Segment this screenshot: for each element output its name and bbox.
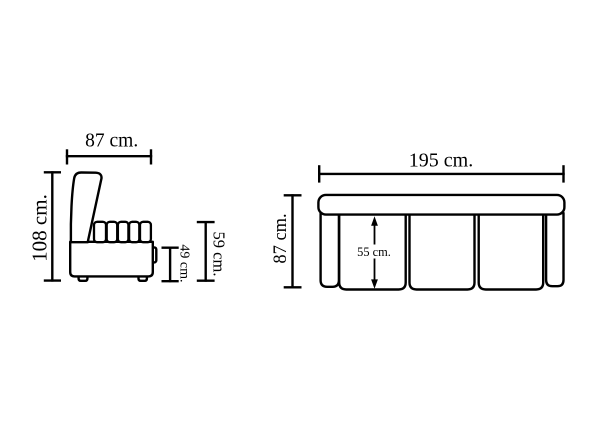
svg-text:49 cm.: 49 cm.: [177, 244, 192, 282]
svg-text:87 cm.: 87 cm.: [271, 213, 291, 263]
svg-text:195 cm.: 195 cm.: [409, 150, 473, 172]
svg-text:55 cm.: 55 cm.: [357, 245, 391, 259]
svg-text:59 cm.: 59 cm.: [210, 232, 229, 277]
svg-text:87 cm.: 87 cm.: [85, 130, 138, 151]
svg-text:108 cm.: 108 cm.: [28, 194, 52, 262]
